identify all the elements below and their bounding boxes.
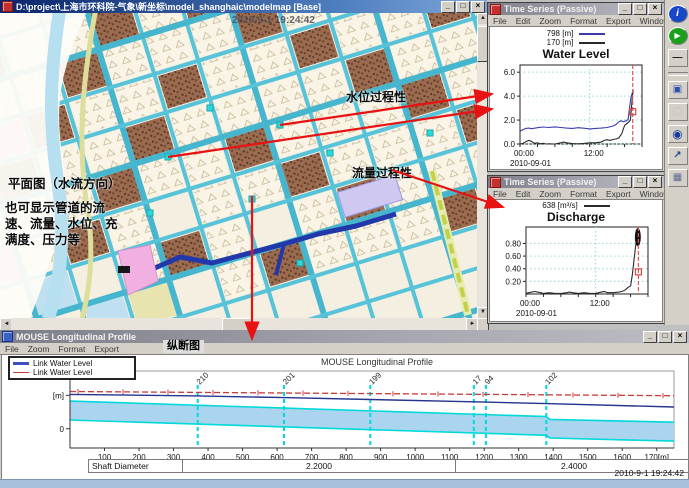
water-level-chart: 0.02.04.06.000:0012:002010-09-01: [490, 61, 663, 170]
legend-line-sample: [13, 362, 29, 365]
ts2-chart-area: 638 [m³/s] Discharge 0.200.400.600.8000:…: [489, 199, 663, 322]
legend-item: Link Water Level: [13, 368, 131, 377]
menu-format[interactable]: Format: [58, 344, 85, 354]
menu-export[interactable]: Export: [94, 344, 119, 354]
ts2-titlebar[interactable]: Time Series (Passive) _ □ ×: [488, 176, 664, 188]
globe-icon[interactable]: ◉: [668, 125, 688, 143]
map-canvas[interactable]: 2010-9-1 19:24:42 水位过程性 流量过程性 平面图（水流方向） …: [0, 13, 477, 318]
maximize-button[interactable]: □: [658, 331, 672, 343]
toolbar-separator: [668, 72, 688, 76]
svg-text:0.80: 0.80: [505, 239, 521, 248]
menu-file[interactable]: File: [493, 189, 507, 199]
annotation-plan-view: 平面图（水流方向）: [8, 173, 121, 192]
network-node: [147, 210, 153, 216]
svg-text:[m]: [m]: [53, 391, 64, 400]
shaft-diameter-table: Shaft Diameter 2.2000 2.4000: [88, 459, 689, 473]
status-timestamp: 2010-9-1 19:24:42: [615, 468, 684, 478]
svg-text:0.40: 0.40: [505, 265, 521, 274]
frame-icon[interactable]: ▣: [668, 81, 688, 99]
ts2-window-title: Time Series (Passive): [504, 177, 596, 187]
profile-titlebar[interactable]: MOUSE Longitudinal Profile _ □ ×: [0, 330, 689, 343]
legend-line-sample: [579, 42, 605, 44]
svg-text:2.0: 2.0: [504, 116, 516, 125]
discharge-chart-title: Discharge: [490, 210, 662, 224]
maximize-button[interactable]: □: [456, 1, 470, 13]
annotation-pipe-note: 也可显示管道的流 速、流量、水位、充 满度、压力等: [5, 200, 118, 248]
app-icon: [2, 1, 13, 12]
discharge-window: Time Series (Passive) _ □ × File Edit Zo…: [487, 175, 665, 324]
water-level-window: Time Series (Passive) _ □ × File Edit Zo…: [487, 2, 665, 172]
close-button[interactable]: ×: [648, 176, 662, 188]
annotation-water-level: 水位过程性: [346, 88, 406, 105]
legend-line-sample: [584, 205, 610, 207]
maximize-button[interactable]: □: [633, 176, 647, 188]
svg-text:6.0: 6.0: [504, 68, 516, 77]
minimize-button[interactable]: _: [618, 3, 632, 15]
line-chart-icon[interactable]: ↗: [668, 147, 688, 165]
profile-chart-area: Link Water Level Link Water Level MOUSE …: [1, 354, 689, 480]
go-icon[interactable]: ▶: [668, 27, 688, 45]
network-node: [277, 122, 283, 128]
network-node: [249, 196, 255, 202]
map-window-title: D:\project\上海市环科院-气象\新坐标\model_shanghaic…: [16, 0, 321, 13]
desktop: D:\project\上海市环科院-气象\新坐标\model_shanghaic…: [0, 0, 689, 488]
menu-export[interactable]: Export: [606, 189, 631, 199]
network-node: [427, 130, 433, 136]
minimize-dash-icon[interactable]: —: [668, 49, 688, 67]
map-timestamp: 2010-9-1 19:24:42: [232, 15, 315, 26]
legend-item: Link Water Level: [13, 359, 131, 368]
annotation-discharge: 流量过程性: [352, 164, 412, 181]
svg-text:0.0: 0.0: [504, 140, 516, 149]
ts1-chart-area: 798 [m] 170 [m] Water Level 0.02.04.06.0…: [489, 26, 663, 170]
legend-item: 638 [m³/s]: [490, 201, 662, 210]
menu-edit[interactable]: Edit: [516, 189, 531, 199]
menu-file[interactable]: File: [493, 16, 507, 26]
menu-zoom[interactable]: Zoom: [539, 16, 561, 26]
network-node: [165, 154, 171, 160]
legend-item: 798 [m]: [490, 29, 662, 38]
close-button[interactable]: ×: [471, 1, 485, 13]
map-window: D:\project\上海市环科院-气象\新坐标\model_shanghaic…: [0, 0, 487, 330]
bottom-edge-strip: [0, 479, 689, 488]
disabled-icon: ▢: [668, 103, 688, 121]
info-icon[interactable]: i: [668, 5, 688, 23]
side-toolbar: i ▶ — ▣ ▢ ◉ ↗ ▦: [664, 0, 689, 325]
minimize-button[interactable]: _: [441, 1, 455, 13]
profile-icon: [2, 331, 13, 342]
discharge-chart: 0.200.400.600.8000:0012:002010-09-01: [490, 224, 663, 322]
maximize-button[interactable]: □: [633, 3, 647, 15]
menu-zoom[interactable]: Zoom: [28, 344, 50, 354]
table-cell: 2.2000: [183, 459, 456, 473]
legend-item: 170 [m]: [490, 38, 662, 47]
map-vscroll-track[interactable]: [477, 24, 487, 307]
svg-text:0.20: 0.20: [505, 277, 521, 286]
menu-export[interactable]: Export: [606, 16, 631, 26]
svg-text:2010-09-01: 2010-09-01: [510, 159, 551, 168]
menu-format[interactable]: Format: [570, 16, 597, 26]
svg-text:00:00: 00:00: [520, 299, 541, 308]
menu-edit[interactable]: Edit: [516, 16, 531, 26]
svg-text:0.60: 0.60: [505, 252, 521, 261]
profile-window-title: MOUSE Longitudinal Profile: [16, 332, 136, 342]
minimize-button[interactable]: _: [643, 331, 657, 343]
ts1-window-title: Time Series (Passive): [504, 4, 596, 14]
svg-text:12:00: 12:00: [590, 299, 611, 308]
annotation-profile-section: 纵断图: [163, 340, 204, 353]
time-series-icon: [490, 177, 501, 188]
svg-text:4.0: 4.0: [504, 92, 516, 101]
time-series-icon: [490, 4, 501, 15]
water-level-chart-title: Water Level: [490, 47, 662, 61]
network-node: [297, 260, 303, 266]
svg-text:2010-09-01: 2010-09-01: [516, 309, 557, 318]
map-titlebar[interactable]: D:\project\上海市环科院-气象\新坐标\model_shanghaic…: [0, 0, 487, 13]
ts1-titlebar[interactable]: Time Series (Passive) _ □ ×: [488, 3, 664, 15]
svg-text:00:00: 00:00: [514, 149, 535, 158]
menu-zoom[interactable]: Zoom: [539, 189, 561, 199]
table-header: Shaft Diameter: [88, 459, 183, 473]
svg-text:MOUSE Longitudinal Profile: MOUSE Longitudinal Profile: [321, 357, 433, 367]
svg-text:12:00: 12:00: [584, 149, 605, 158]
data-grid-icon[interactable]: ▦: [668, 169, 688, 187]
network-node: [327, 150, 333, 156]
legend-line-sample: [579, 33, 605, 35]
network-node: [207, 105, 213, 111]
menu-file[interactable]: File: [5, 344, 19, 354]
minimize-button[interactable]: _: [618, 176, 632, 188]
profile-legend: Link Water Level Link Water Level: [8, 356, 136, 380]
svg-text:0: 0: [60, 425, 65, 434]
menu-format[interactable]: Format: [570, 189, 597, 199]
close-button[interactable]: ×: [673, 331, 687, 343]
profile-window: MOUSE Longitudinal Profile _ □ × File Zo…: [0, 330, 689, 479]
close-button[interactable]: ×: [648, 3, 662, 15]
legend-line-sample: [13, 372, 29, 373]
